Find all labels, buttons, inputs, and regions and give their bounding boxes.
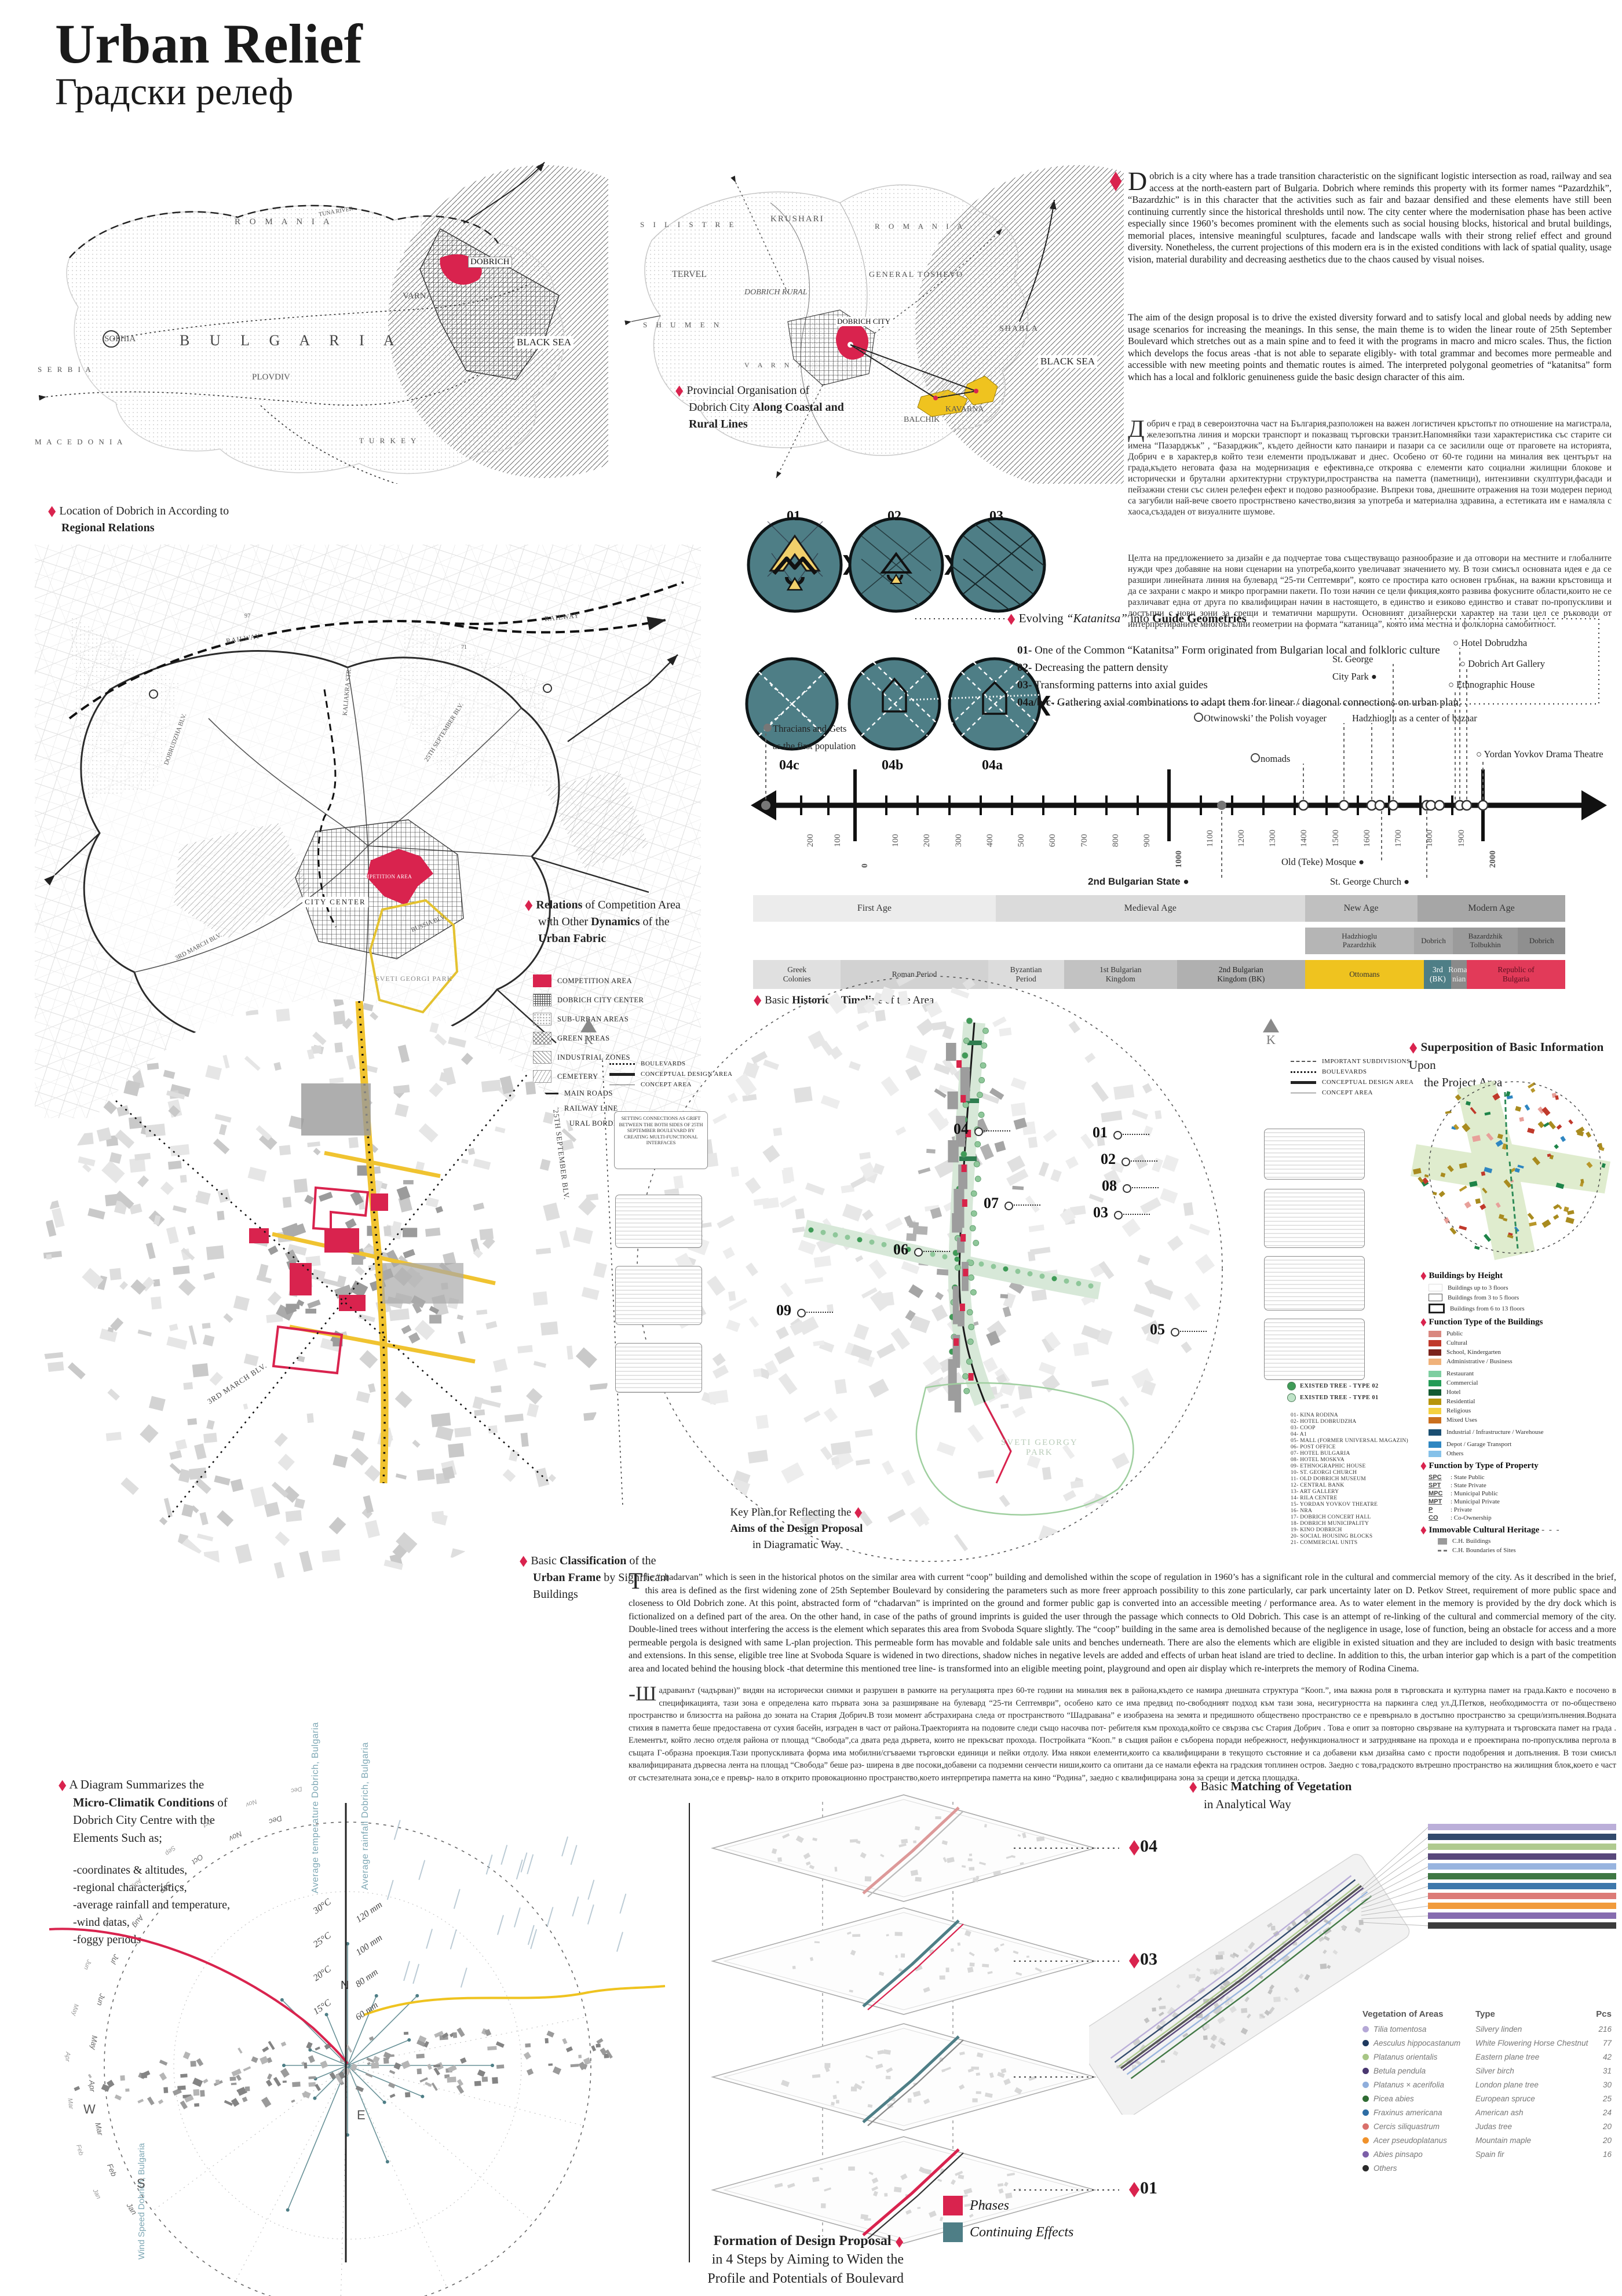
caption-vegetation: ◆ Basic Matching of Vegetation in Analyt… — [1189, 1777, 1432, 1813]
species-color-dot — [1362, 2082, 1369, 2088]
formation-legend-item: Continuing Effects — [943, 2222, 1073, 2242]
species-color-dot — [1362, 2026, 1369, 2032]
species-color-dot — [1362, 2151, 1369, 2158]
vegetation-table-row: Fraxinus americanaAmerican ash24 — [1362, 2108, 1617, 2117]
species-color-dot — [1362, 2068, 1369, 2074]
vegetation-table-row: Tilia tomentosaSilvery linden216 — [1362, 2025, 1617, 2034]
formation-legend: PhasesContinuing Effects — [943, 2196, 1073, 2249]
vegetation-table-row: Others — [1362, 2164, 1617, 2173]
species-color-dot — [1362, 2096, 1369, 2102]
vegetation-table-row: Platanus × acerifoliaLondon plane tree30 — [1362, 2080, 1617, 2089]
caption-formation: Formation of Design Proposal ◆ in 4 Step… — [602, 2232, 904, 2288]
poster-urban-relief: { "accent":"#D9234E","teal":"#4E7E86","g… — [0, 0, 1622, 2296]
vegetation-table-row: Cercis siliquastrumJudas tree20 — [1362, 2122, 1617, 2131]
vegetation-table-header: Vegetation of AreasTypePcs — [1362, 2009, 1617, 2019]
vegetation-table-row: Acer pseudoplatanusMountain maple20 — [1362, 2136, 1617, 2145]
species-color-dot — [1362, 2054, 1369, 2060]
vegetation-table-row: Aesculus hippocastanumWhite Flowering Ho… — [1362, 2039, 1617, 2047]
vegetation-table-row: Picea abiesEuropean spruce25 — [1362, 2094, 1617, 2103]
diamond-icon: ◆ — [1189, 1776, 1197, 1797]
species-color-dot — [1362, 2137, 1369, 2144]
diamond-icon: ◆ — [896, 2232, 903, 2252]
species-color-dot — [1362, 2040, 1369, 2046]
species-color-dot — [1362, 2109, 1369, 2116]
vegetation-table-row: Betula pendulaSilver birch31 — [1362, 2067, 1617, 2075]
formation-legend-item: Phases — [943, 2196, 1073, 2215]
vegetation-table-row: Abies pinsapoSpain fir16 — [1362, 2150, 1617, 2159]
vegetation-table-row: Platanus orientalisEastern plane tree42 — [1362, 2053, 1617, 2061]
species-color-dot — [1362, 2123, 1369, 2130]
species-color-dot — [1362, 2165, 1369, 2171]
vegetation-table: Vegetation of AreasTypePcsTilia tomentos… — [1362, 2009, 1617, 2178]
